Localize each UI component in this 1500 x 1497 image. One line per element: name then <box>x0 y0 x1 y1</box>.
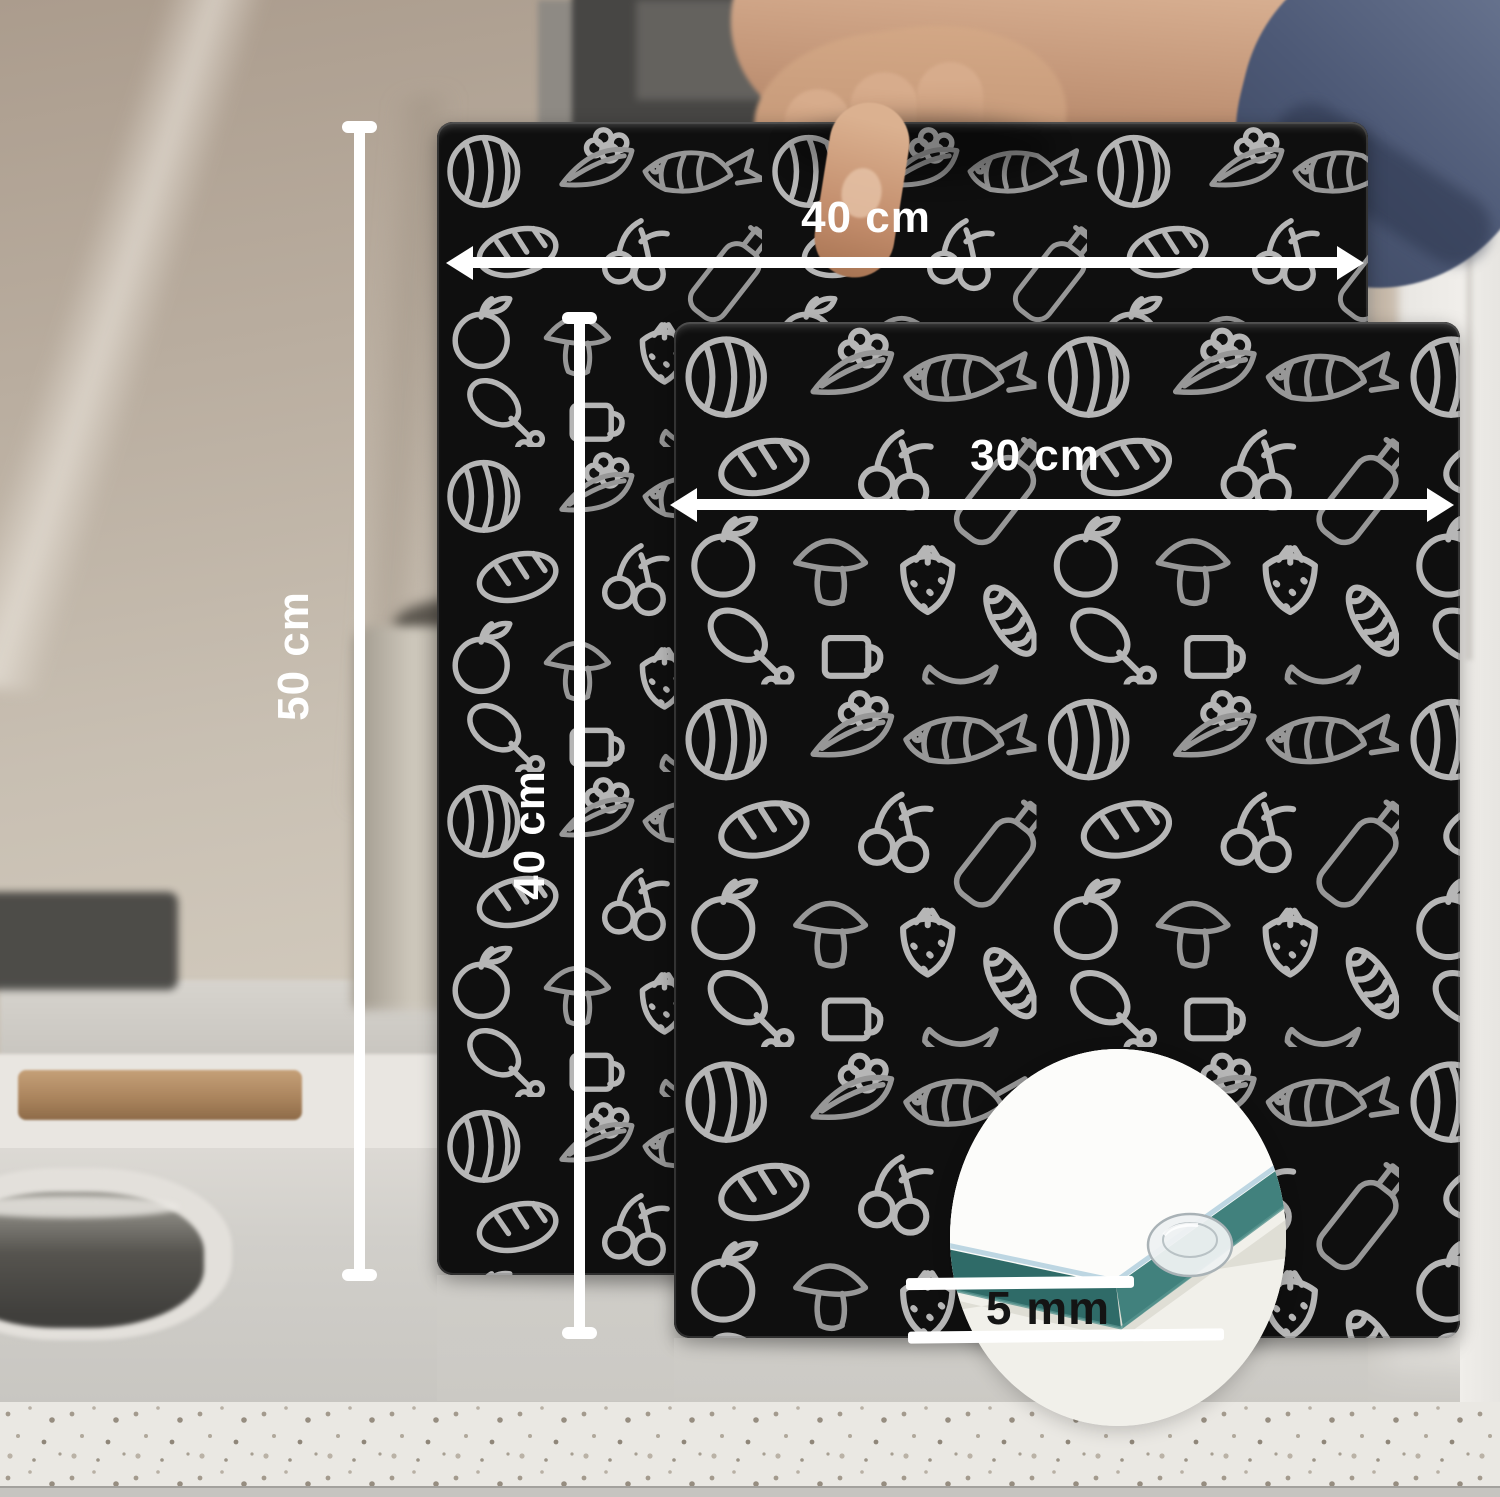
drawer-handle <box>18 1070 302 1120</box>
thickness-inset-art <box>950 1049 1286 1426</box>
label-large-board-height: 50 cm <box>272 556 316 756</box>
label-large-board-width: 40 cm <box>766 196 966 240</box>
width-arrow-small-board <box>670 488 1454 522</box>
height-line-large-board <box>342 121 377 1281</box>
product-photo-scene: 40 cm 50 cm 30 cm 40 cm <box>0 0 1500 1497</box>
silicone-foot <box>1148 1214 1232 1276</box>
counter-edge-shadow <box>0 1486 1500 1497</box>
arrow-right-icon <box>1427 488 1454 522</box>
label-small-board-width: 30 cm <box>935 434 1135 478</box>
label-board-thickness: 5 mm <box>966 1286 1130 1330</box>
height-line-small-board <box>562 312 597 1339</box>
label-small-board-height: 40 cm <box>508 735 552 935</box>
thickness-detail-inset <box>950 1049 1286 1426</box>
cap-icon <box>342 1269 377 1281</box>
cooktop <box>0 892 178 990</box>
cap-icon <box>562 1327 597 1339</box>
width-arrow-large-board <box>446 246 1364 280</box>
arrow-right-icon <box>1337 246 1364 280</box>
